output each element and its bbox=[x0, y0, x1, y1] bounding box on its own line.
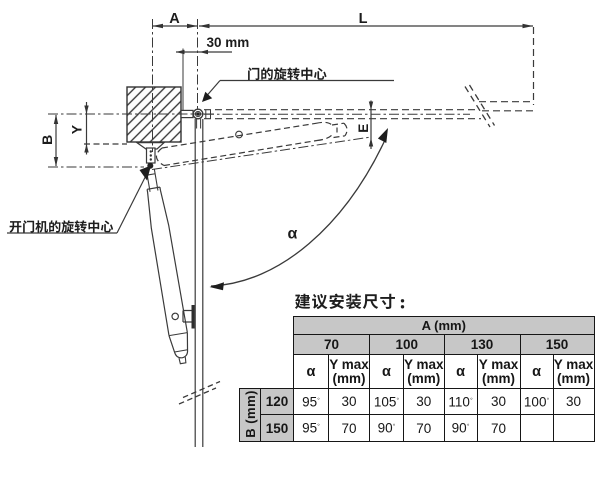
svg-text:A: A bbox=[169, 11, 180, 27]
svg-text:B: B bbox=[39, 135, 55, 145]
svg-text:30 mm: 30 mm bbox=[207, 35, 250, 50]
svg-text:Y: Y bbox=[69, 124, 85, 134]
svg-text:E: E bbox=[356, 124, 371, 133]
svg-text:α: α bbox=[287, 226, 297, 243]
svg-text:L: L bbox=[359, 11, 368, 27]
